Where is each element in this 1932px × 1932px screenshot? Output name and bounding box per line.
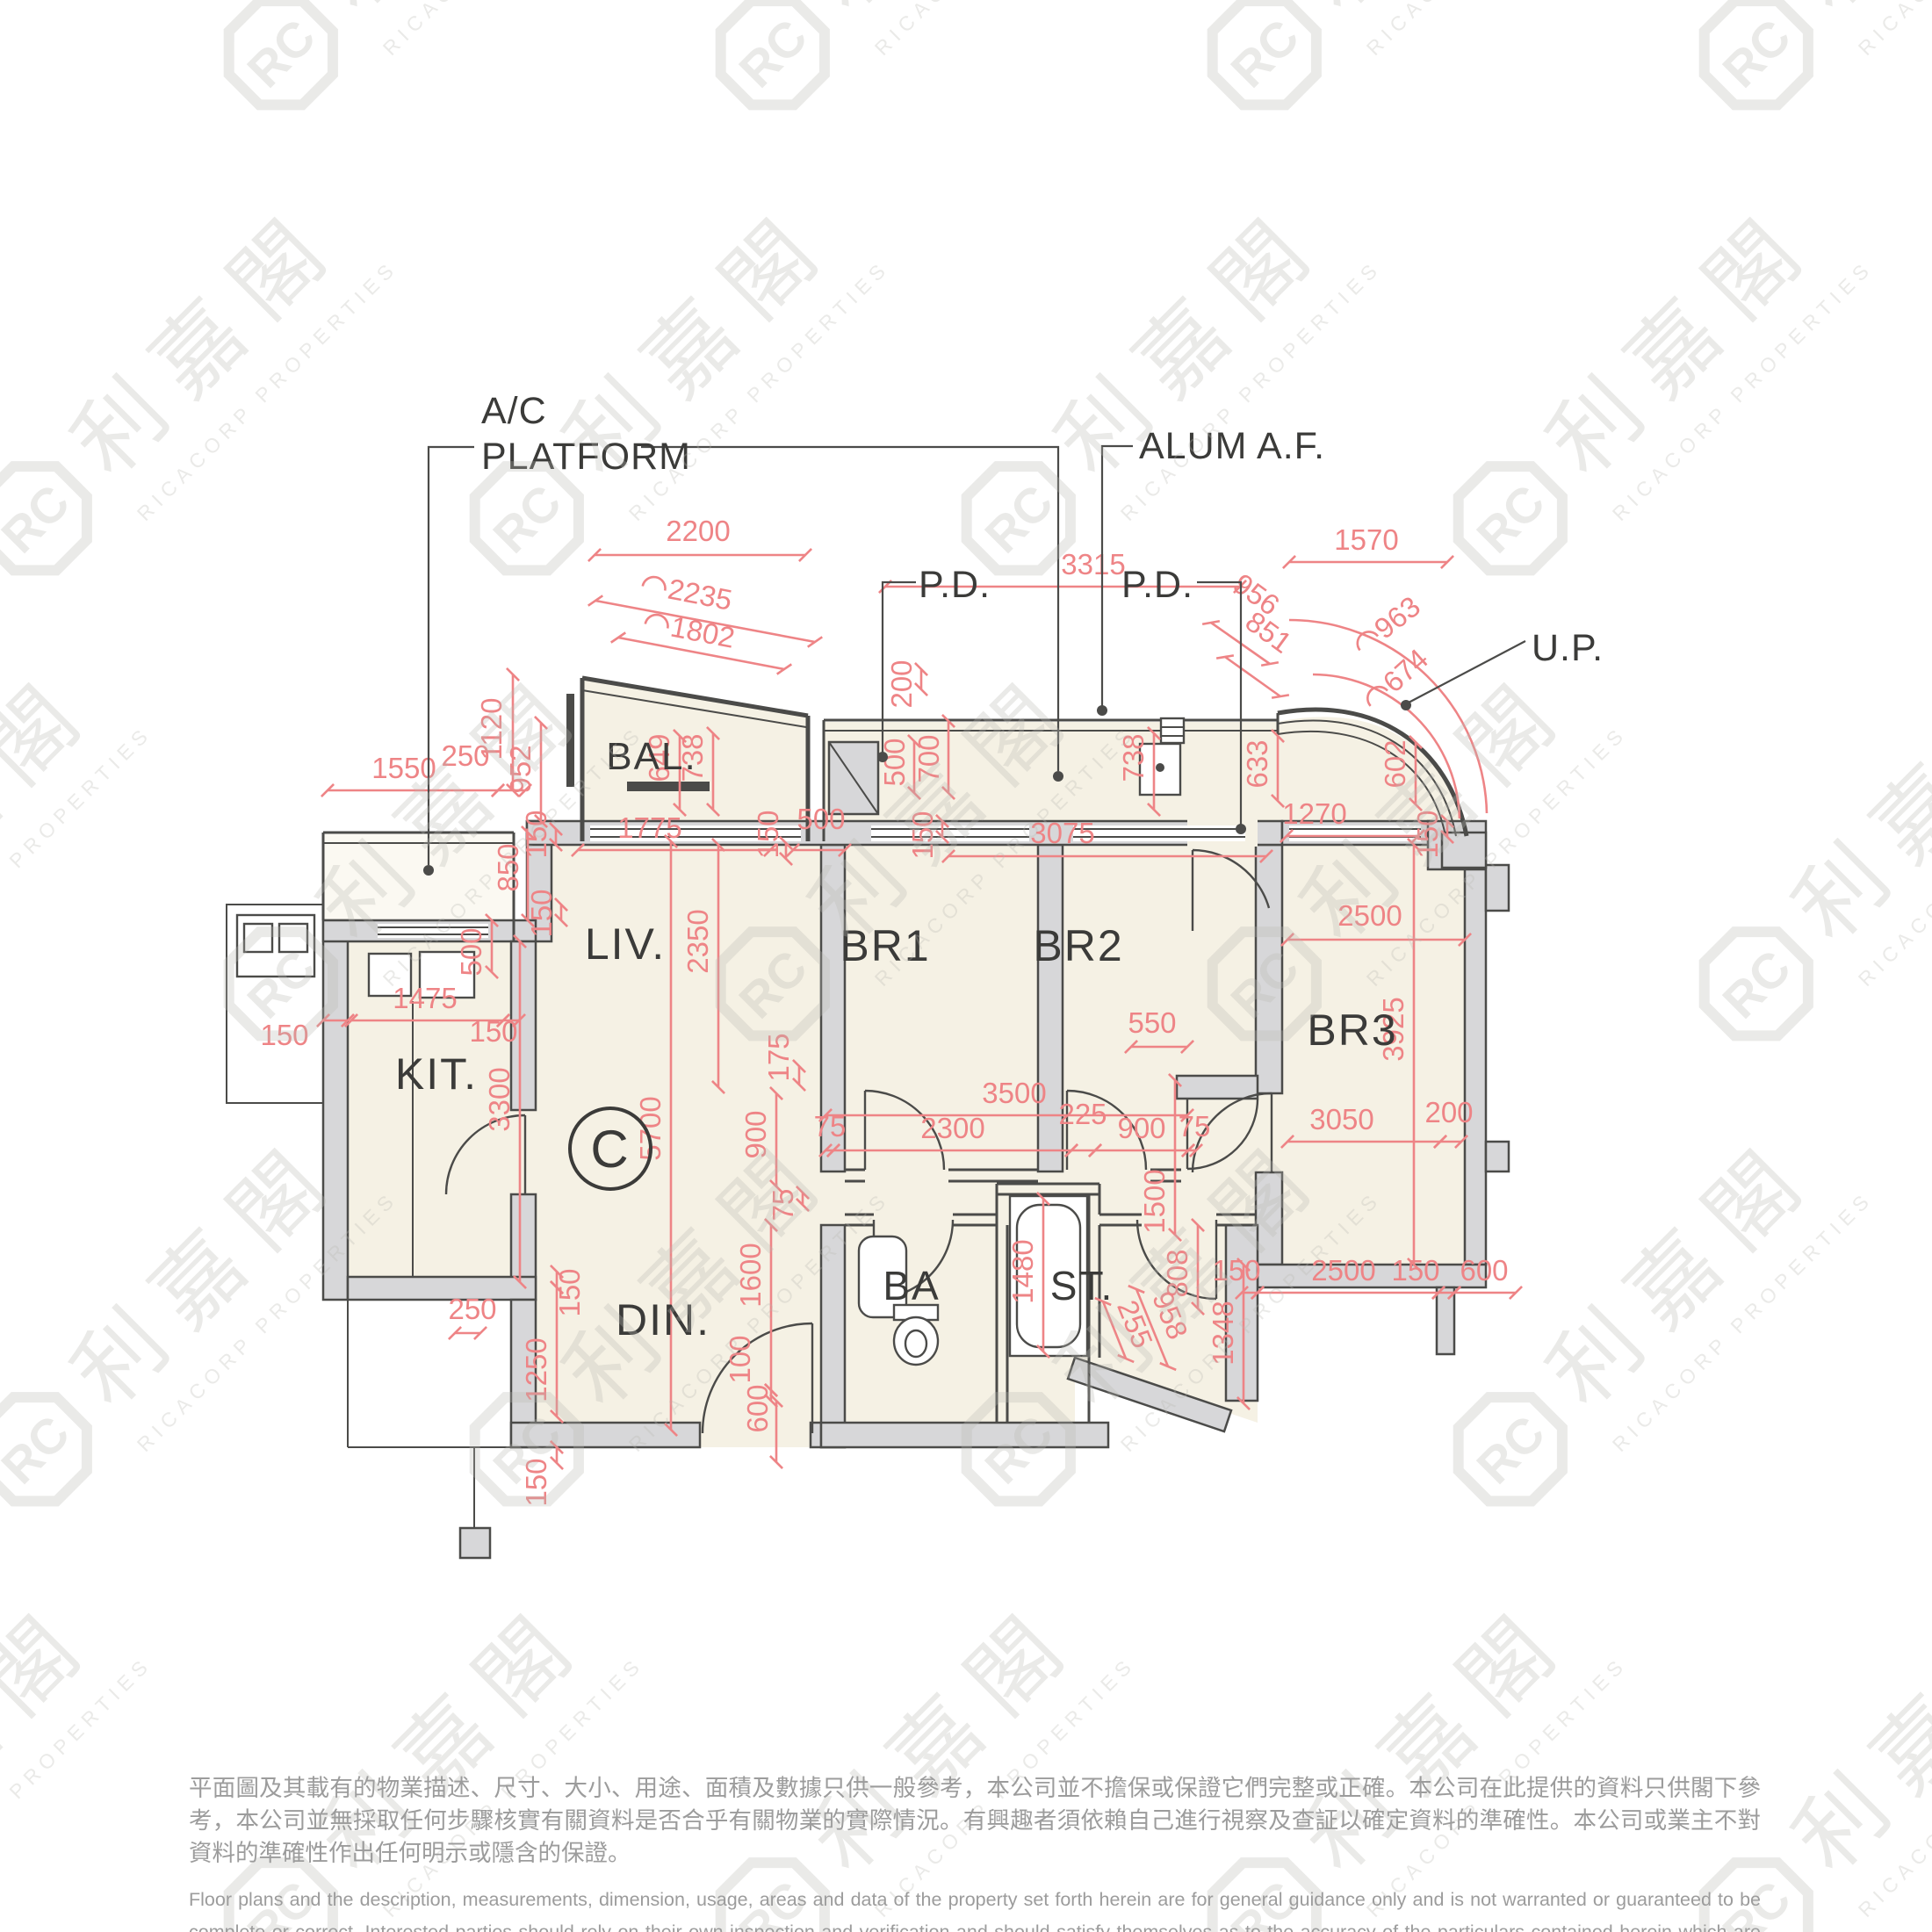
disclaimer: 平面圖及其載有的物業描述、尺寸、大小、用途、面積及數據只供一般參考，本公司並不擔… — [189, 1772, 1761, 1932]
svg-text:900: 900 — [739, 1110, 772, 1158]
svg-text:1500: 1500 — [1138, 1169, 1171, 1233]
room-label-liv: LIV. — [585, 919, 666, 969]
dimension-label: 1250 — [520, 1337, 552, 1402]
room-label-kit: KIT. — [395, 1049, 478, 1099]
room-label-br1: BR1 — [840, 921, 930, 970]
room-label-ba: BA — [883, 1263, 940, 1308]
dimension-label: 2500 — [1311, 1254, 1375, 1287]
dimension-label: 3500 — [982, 1077, 1046, 1109]
watermark-tile: RC利嘉閣RICACORP PROPERTIES — [0, 174, 402, 615]
watermark-tile: RC利嘉閣RICACORP PROPERTIES — [207, 0, 648, 150]
watermark-tile: RC利嘉閣RICACORP PROPERTIES — [1928, 1105, 1932, 1546]
disclaimer-english: Floor plans and the description, measure… — [189, 1884, 1761, 1932]
watermark-cjk: 利嘉閣 — [0, 1585, 113, 1889]
svg-text:1802: 1802 — [668, 610, 738, 654]
watermark-en: RICACORP PROPERTIES — [1854, 721, 1932, 991]
dimension-label: 2235 — [640, 567, 735, 616]
dimension-label: 150 — [525, 889, 558, 937]
svg-text:1570: 1570 — [1334, 523, 1398, 556]
dimension-label: 738 — [1117, 733, 1150, 782]
watermark-en: RICACORP PROPERTIES — [0, 0, 156, 60]
svg-text:2500: 2500 — [1311, 1254, 1375, 1287]
dimension-label: 2200 — [666, 515, 730, 547]
svg-text:3315: 3315 — [1061, 548, 1125, 580]
svg-text:2200: 2200 — [666, 515, 730, 547]
svg-text:738: 738 — [1117, 733, 1150, 782]
svg-text:200: 200 — [885, 660, 918, 708]
watermark-logo: RC — [236, 9, 326, 98]
watermark-cjk: 利嘉閣 — [300, 0, 604, 28]
dimension-label: 1550 — [371, 752, 436, 784]
dimension-label: 900 — [739, 1110, 772, 1158]
watermark-cjk: 利嘉閣 — [1776, 654, 1932, 958]
dimension-label: 100 — [724, 1335, 756, 1383]
dimension-label: 1500 — [1138, 1169, 1171, 1233]
svg-text:225: 225 — [1058, 1098, 1107, 1130]
watermark-cjk: 利嘉閣 — [1530, 189, 1834, 493]
watermark-cjk: 利嘉閣 — [1284, 0, 1588, 28]
watermark-tile: RC利嘉閣RICACORP PROPERTIES — [1683, 639, 1932, 1080]
watermark-cjk: 利嘉閣 — [1776, 1585, 1932, 1889]
watermark-tile: RC利嘉閣RICACORP PROPERTIES — [0, 1570, 156, 1932]
watermark-en: RICACORP PROPERTIES — [1854, 0, 1932, 60]
dimension-label: 225 — [1058, 1098, 1107, 1130]
watermark-logo: RC — [1466, 474, 1555, 564]
dimension-label: 500 — [455, 927, 487, 976]
svg-text:150: 150 — [525, 889, 558, 937]
svg-text:633: 633 — [1241, 739, 1273, 788]
svg-text:1550: 1550 — [371, 752, 436, 784]
dimension-label: 175 — [762, 1033, 795, 1081]
watermark-en: RICACORP PROPERTIES — [870, 0, 1140, 60]
svg-text:150: 150 — [906, 811, 939, 859]
floorplan-page: 2200223518023315157095685196367415502501… — [0, 0, 1932, 1932]
svg-text:963: 963 — [1368, 589, 1426, 645]
room-label-bal: BAL. — [606, 735, 696, 778]
dimension-label: 150 — [260, 1019, 308, 1051]
dimension-label: 500 — [797, 803, 845, 835]
svg-text:674: 674 — [1376, 642, 1434, 698]
watermark-tile: RC利嘉閣RICACORP PROPERTIES — [0, 0, 156, 150]
dimension-label: 200 — [885, 660, 918, 708]
disclaimer-chinese: 平面圖及其載有的物業描述、尺寸、大小、用途、面積及數據只供一般參考，本公司並不擔… — [189, 1772, 1761, 1870]
svg-text:900: 900 — [1117, 1112, 1165, 1144]
svg-text:600: 600 — [741, 1384, 774, 1432]
svg-text:1600: 1600 — [734, 1243, 767, 1307]
room-label-din: DIN. — [616, 1295, 710, 1344]
watermark-en: RICACORP PROPERTIES — [1608, 1186, 1878, 1456]
dimension-label: 1775 — [617, 811, 681, 844]
dimension-label: 602 — [1379, 739, 1411, 788]
svg-text:75: 75 — [767, 1189, 799, 1222]
svg-text:75: 75 — [814, 1110, 847, 1143]
watermark-logo: RC — [0, 1405, 80, 1495]
dimension-label: 150 — [520, 1458, 552, 1506]
watermark-logo: RC — [1712, 9, 1801, 98]
watermark-tile: RC利嘉閣RICACORP PROPERTIES — [1683, 0, 1932, 150]
watermark-logo: RC — [974, 474, 1063, 564]
svg-text:952: 952 — [504, 745, 537, 793]
svg-text:2350: 2350 — [681, 909, 714, 973]
dimension-label: 3075 — [1030, 817, 1094, 849]
watermark-en: RICACORP PROPERTIES — [0, 721, 156, 991]
watermark-tile: RC利嘉閣RICACORP PROPERTIES — [699, 0, 1140, 150]
dimension-label: 3050 — [1309, 1103, 1373, 1135]
svg-text:602: 602 — [1379, 739, 1411, 788]
watermark-tile: RC利嘉閣RICACORP PROPERTIES — [0, 639, 156, 1080]
dimension-label: 3315 — [1061, 548, 1125, 580]
callout-pd-right: P.D. — [1121, 564, 1193, 606]
unit-mark: C — [590, 1120, 630, 1179]
svg-text:550: 550 — [1128, 1006, 1176, 1039]
watermark-en: RICACORP PROPERTIES — [624, 256, 894, 525]
dimension-label: 674 — [1358, 642, 1434, 716]
svg-text:150: 150 — [1212, 1254, 1260, 1287]
dimension-label: 1270 — [1282, 797, 1346, 830]
room-label-br2: BR2 — [1033, 921, 1123, 970]
dimension-label: 200 — [1424, 1096, 1473, 1128]
svg-text:1120: 1120 — [475, 698, 508, 761]
dimension-label: 2350 — [681, 909, 714, 973]
svg-text:3075: 3075 — [1030, 817, 1094, 849]
dimension-label: 250 — [448, 1293, 496, 1325]
watermark-en: RICACORP PROPERTIES — [378, 0, 648, 60]
svg-text:150: 150 — [1411, 810, 1444, 858]
dimension-label: 150 — [553, 1268, 586, 1316]
dimension-label: 1475 — [393, 982, 457, 1014]
svg-text:200: 200 — [1424, 1096, 1473, 1128]
dimension-label: 952 — [504, 745, 537, 793]
callout-ac-platform: A/CPLATFORM — [481, 390, 691, 478]
svg-text:2300: 2300 — [920, 1112, 984, 1144]
watermark-en: RICACORP PROPERTIES — [133, 256, 402, 525]
svg-text:500: 500 — [797, 803, 845, 835]
dimension-label: 150 — [1391, 1254, 1439, 1287]
svg-text:1475: 1475 — [393, 982, 457, 1014]
callout-up: U.P. — [1532, 627, 1604, 669]
svg-text:150: 150 — [1391, 1254, 1439, 1287]
dimension-label: 3300 — [483, 1067, 515, 1131]
dimension-label: 150 — [520, 810, 552, 858]
svg-text:75: 75 — [1179, 1110, 1211, 1143]
svg-text:3050: 3050 — [1309, 1103, 1373, 1135]
svg-text:1250: 1250 — [520, 1337, 552, 1402]
dimension-label: 2300 — [920, 1112, 984, 1144]
dimension-label: 150 — [752, 810, 784, 858]
watermark-logo: RC — [728, 9, 818, 98]
dimension-label: 600 — [1460, 1254, 1508, 1287]
watermark-en: RICACORP PROPERTIES — [1608, 256, 1878, 525]
floorplan-drawing: 2200223518023315157095685196367415502501… — [0, 0, 1932, 1932]
watermark-logo: RC — [1466, 1405, 1555, 1495]
dimension-label: 600 — [741, 1384, 774, 1432]
watermark-en: RICACORP PROPERTIES — [1854, 1652, 1932, 1921]
dimension-label: 1570 — [1334, 523, 1398, 556]
watermark-logo: RC — [1712, 940, 1801, 1029]
watermark-cjk: 利嘉閣 — [0, 0, 113, 28]
dimension-label: 900 — [1117, 1112, 1165, 1144]
watermark-cjk: 利嘉閣 — [792, 0, 1096, 28]
svg-text:150: 150 — [520, 1458, 552, 1506]
watermark-tile: RC利嘉閣RICACORP PROPERTIES — [1437, 174, 1878, 615]
watermark-logo: RC — [482, 474, 572, 564]
dimension-label: 850 — [492, 843, 524, 891]
svg-text:850: 850 — [492, 843, 524, 891]
dimension-label: 150 — [469, 1015, 517, 1048]
svg-text:175: 175 — [762, 1033, 795, 1081]
svg-text:1270: 1270 — [1282, 797, 1346, 830]
dimension-label: 1600 — [734, 1243, 767, 1307]
svg-text:700: 700 — [912, 734, 945, 782]
watermark-cjk: 利嘉閣 — [1530, 1120, 1834, 1424]
dimension-label: 1480 — [1006, 1239, 1039, 1303]
svg-text:851: 851 — [1240, 605, 1298, 660]
watermark-en: RICACORP PROPERTIES — [0, 1652, 156, 1921]
svg-text:1348: 1348 — [1207, 1301, 1239, 1365]
watermark-tile: RC利嘉閣RICACORP PROPERTIES — [1191, 0, 1632, 150]
watermark-en: RICACORP PROPERTIES — [1362, 0, 1632, 60]
callout-alum-af: ALUM A.F. — [1139, 425, 1325, 467]
watermark-tile: RC利嘉閣RICACORP PROPERTIES — [945, 174, 1386, 615]
svg-text:1480: 1480 — [1006, 1239, 1039, 1303]
watermark-logo: RC — [0, 474, 80, 564]
svg-text:150: 150 — [260, 1019, 308, 1051]
dimension-label: 851 — [1240, 605, 1298, 660]
watermark-cjk: 利嘉閣 — [1776, 0, 1932, 28]
dimension-label: 700 — [912, 734, 945, 782]
svg-text:150: 150 — [752, 810, 784, 858]
svg-text:1775: 1775 — [617, 811, 681, 844]
watermark-logo: RC — [1220, 9, 1309, 98]
watermark-cjk: 利嘉閣 — [54, 189, 358, 493]
svg-text:150: 150 — [469, 1015, 517, 1048]
callout-pd-left: P.D. — [919, 564, 991, 606]
svg-text:150: 150 — [553, 1268, 586, 1316]
svg-text:250: 250 — [448, 1293, 496, 1325]
svg-text:150: 150 — [520, 810, 552, 858]
room-label-st: ST. — [1050, 1263, 1114, 1308]
dimension-label: 150 — [1212, 1254, 1260, 1287]
dimension-label: 633 — [1241, 739, 1273, 788]
room-label-br3: BR3 — [1307, 1006, 1397, 1055]
watermark-cjk: 利嘉閣 — [54, 1120, 358, 1424]
dimension-label: 150 — [906, 811, 939, 859]
svg-text:3500: 3500 — [982, 1077, 1046, 1109]
svg-text:100: 100 — [724, 1335, 756, 1383]
svg-text:3300: 3300 — [483, 1067, 515, 1131]
watermark-cjk: 利嘉閣 — [0, 654, 113, 958]
watermark-tile: RC利嘉閣RICACORP PROPERTIES — [1928, 174, 1932, 615]
svg-text:500: 500 — [455, 927, 487, 976]
dimension-label: 2500 — [1337, 899, 1402, 932]
dimension-label: 150 — [1411, 810, 1444, 858]
dimension-label: 1348 — [1207, 1301, 1239, 1365]
dimension-label: 75 — [814, 1110, 847, 1143]
dimension-label: 550 — [1128, 1006, 1176, 1039]
svg-text:2500: 2500 — [1337, 899, 1402, 932]
dimension-label: 75 — [767, 1189, 799, 1222]
svg-text:600: 600 — [1460, 1254, 1508, 1287]
dimension-label: 1120 — [475, 698, 508, 761]
watermark-en: RICACORP PROPERTIES — [1116, 256, 1386, 525]
dimension-label: 75 — [1179, 1110, 1211, 1143]
